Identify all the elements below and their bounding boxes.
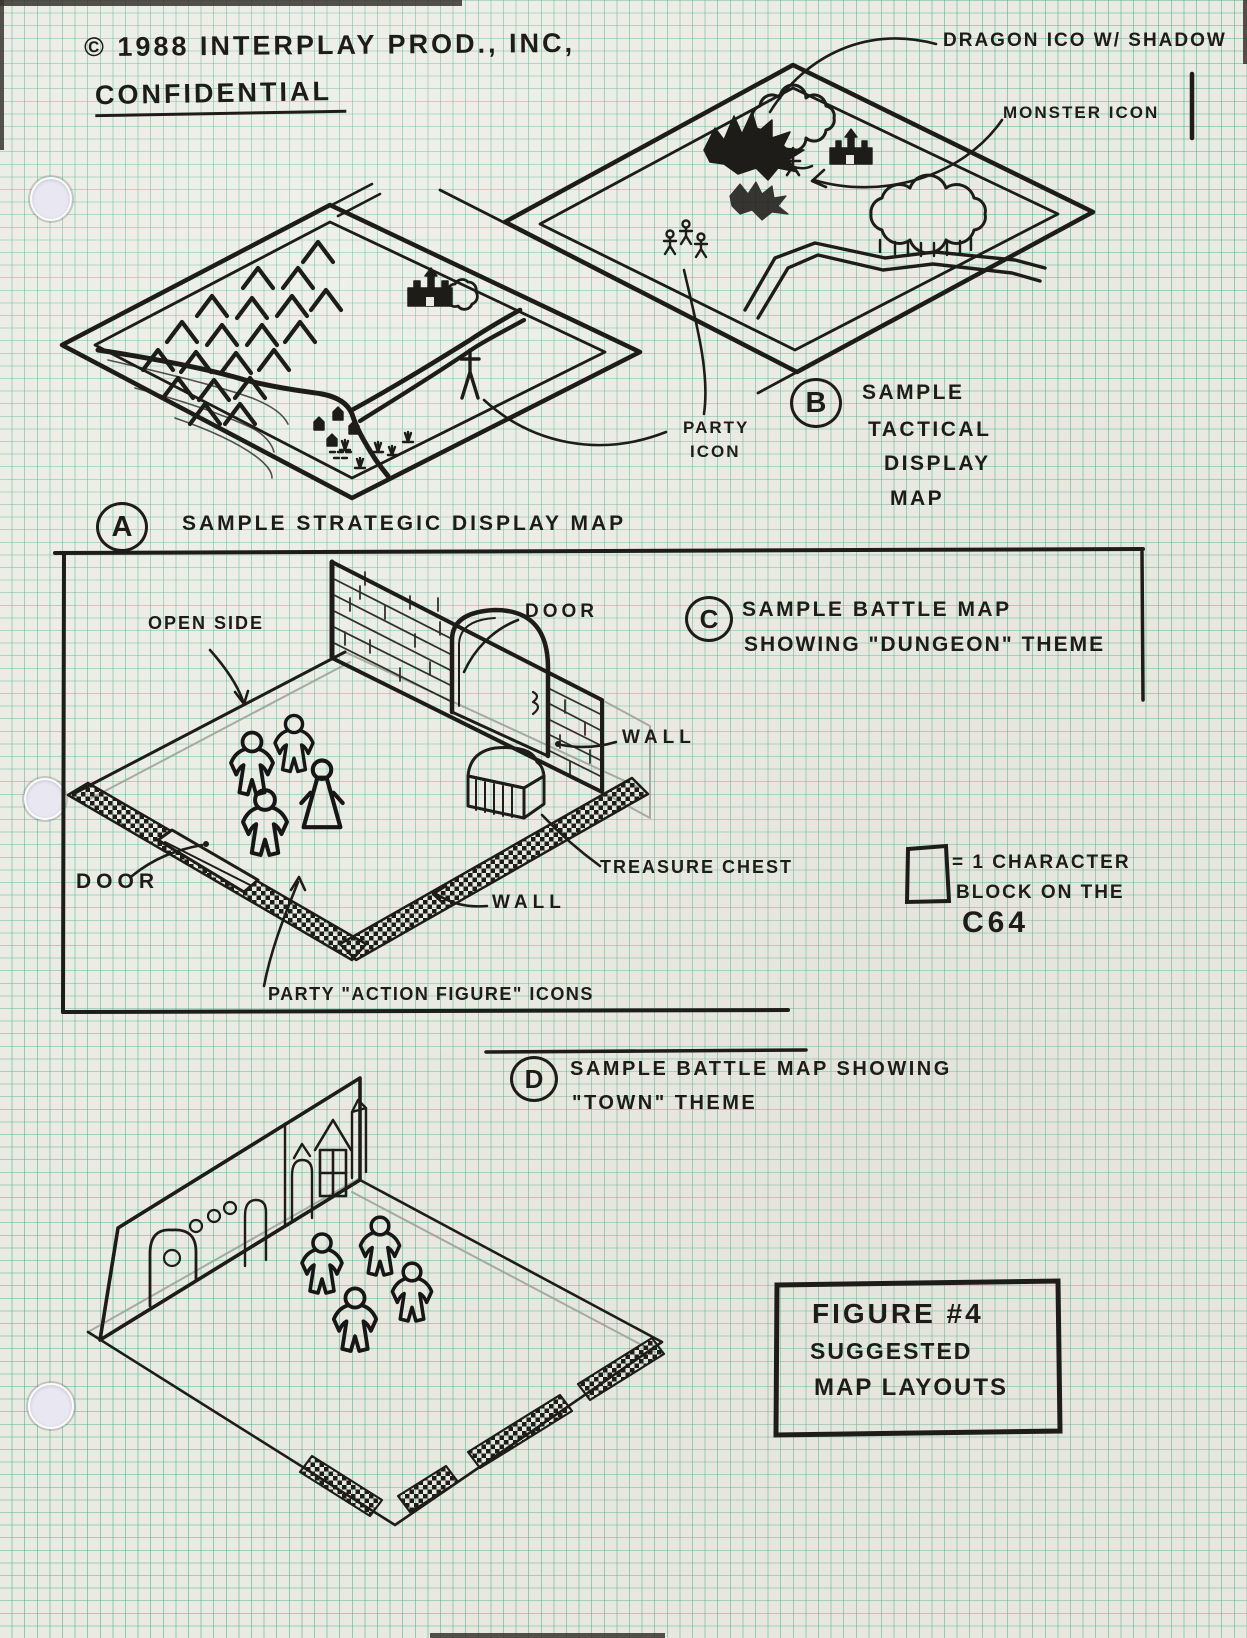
section-d-badge: D [510,1056,558,1102]
character-block-legend: C64 [962,906,1029,940]
castle-icon [408,268,452,306]
map-b-tactical [440,65,1093,393]
sketch-artwork [0,0,1247,1638]
character-block-legend: BLOCK ON THE [956,882,1125,904]
dragon-icon-label: DRAGON ICO W/ SHADOW [943,30,1227,52]
open-side-edge [75,652,345,793]
section-b-title: DISPLAY [884,452,991,476]
section-b-badge: B [790,378,842,428]
open-side-label: OPEN SIDE [148,613,264,634]
section-c-title: SAMPLE BATTLE MAP [742,598,1012,622]
party-action-figures [231,715,343,855]
figure-box-title: SUGGESTED [810,1338,972,1365]
monster-icon-label: MONSTER ICON [1003,103,1159,123]
confidential-label: CONFIDENTIAL [95,76,347,117]
building-facade [100,1078,366,1340]
dragon-pointer [770,39,936,112]
section-d-title: SAMPLE BATTLE MAP SHOWING [570,1058,952,1081]
section-c-badge: C [685,596,733,642]
open-side-arrow [210,650,248,704]
door-upper-pointer [464,620,518,672]
party-action-figures [302,1217,432,1351]
door-lower-label: DOOR [76,870,159,894]
tree-cluster-icon [871,175,985,256]
figure-box-title: FIGURE #4 [812,1298,984,1330]
dragon-shadow [730,182,788,220]
door-upper-label: DOOR [525,601,598,623]
character-block-symbol [907,846,949,902]
section-a-badge: A [96,502,148,552]
round-windows [190,1202,236,1232]
section-c-title: SHOWING "DUNGEON" THEME [744,633,1105,657]
party-icon-pointer-a [484,400,666,445]
door-plank [158,830,258,892]
party-icon-label: ICON [690,442,741,462]
party-icon-pointer-b [684,270,705,414]
section-a-title: SAMPLE STRATEGIC DISPLAY MAP [182,512,626,536]
arch-windows [245,1144,312,1266]
party-figures-label: PARTY "ACTION FIGURE" ICONS [268,984,594,1005]
castle-icon [830,129,872,164]
character-block-legend: = 1 CHARACTER [952,852,1131,874]
section-b-title: SAMPLE [862,381,965,405]
party-icon-label: PARTY [683,418,749,438]
wall-right-label: WALL [622,727,696,749]
section-b-title: TACTICAL [868,418,991,442]
wall-lower-label: WALL [492,892,566,914]
map-d-town [88,1078,664,1525]
brick-wall [332,562,602,792]
wall-strips [300,1338,664,1516]
copyright-line: © 1988 INTERPLAY PROD., INC, [84,28,575,63]
section-b-title: MAP [890,487,944,511]
graph-paper-page: © 1988 INTERPLAY PROD., INC, CONFIDENTIA… [0,0,1247,1638]
treasure-chest-label: TREASURE CHEST [600,857,793,878]
section-d-title: "TOWN" THEME [572,1092,757,1115]
figure-box-title: MAP LAYOUTS [814,1374,1008,1402]
party-icons-tactical [664,221,707,258]
door-handle [533,692,538,714]
house-door [315,1120,351,1196]
